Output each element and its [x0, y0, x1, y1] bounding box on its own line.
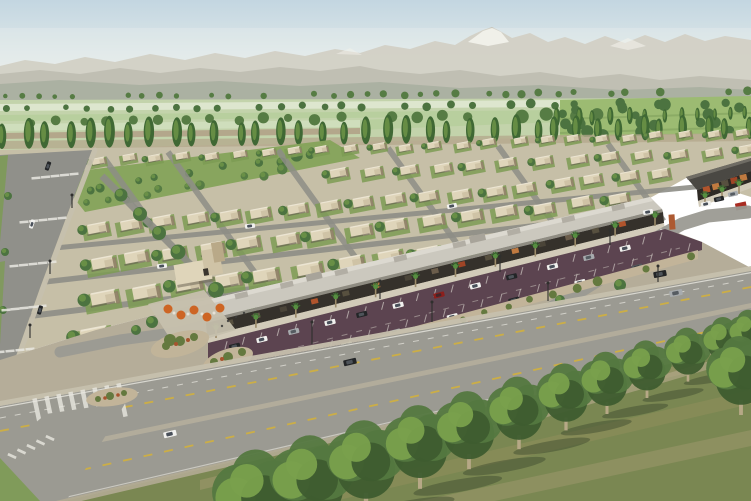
aerial-render-svg	[0, 0, 751, 501]
aerial-development-render	[0, 0, 751, 501]
